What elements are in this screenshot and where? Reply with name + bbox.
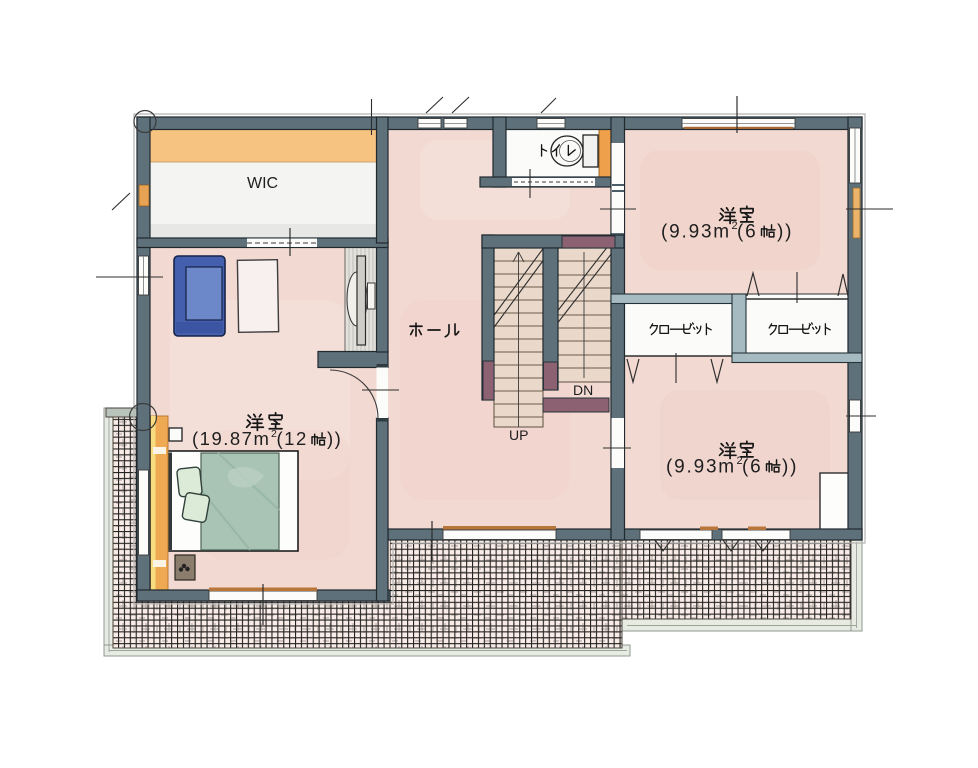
svg-text:)): ))	[777, 222, 793, 243]
svg-text:WIC: WIC	[247, 175, 278, 192]
svg-text:(6: (6	[742, 457, 763, 478]
svg-text:UP: UP	[509, 427, 528, 443]
svg-text:DN: DN	[573, 382, 593, 398]
svg-text:(9.93m: (9.93m	[666, 457, 736, 478]
svg-text:)): ))	[782, 457, 798, 478]
svg-text:(6: (6	[737, 222, 758, 243]
svg-text:(9.93m: (9.93m	[661, 222, 731, 243]
svg-text:(12: (12	[277, 428, 308, 449]
svg-text:(19.87m: (19.87m	[192, 428, 270, 449]
svg-text:)): ))	[327, 428, 342, 449]
